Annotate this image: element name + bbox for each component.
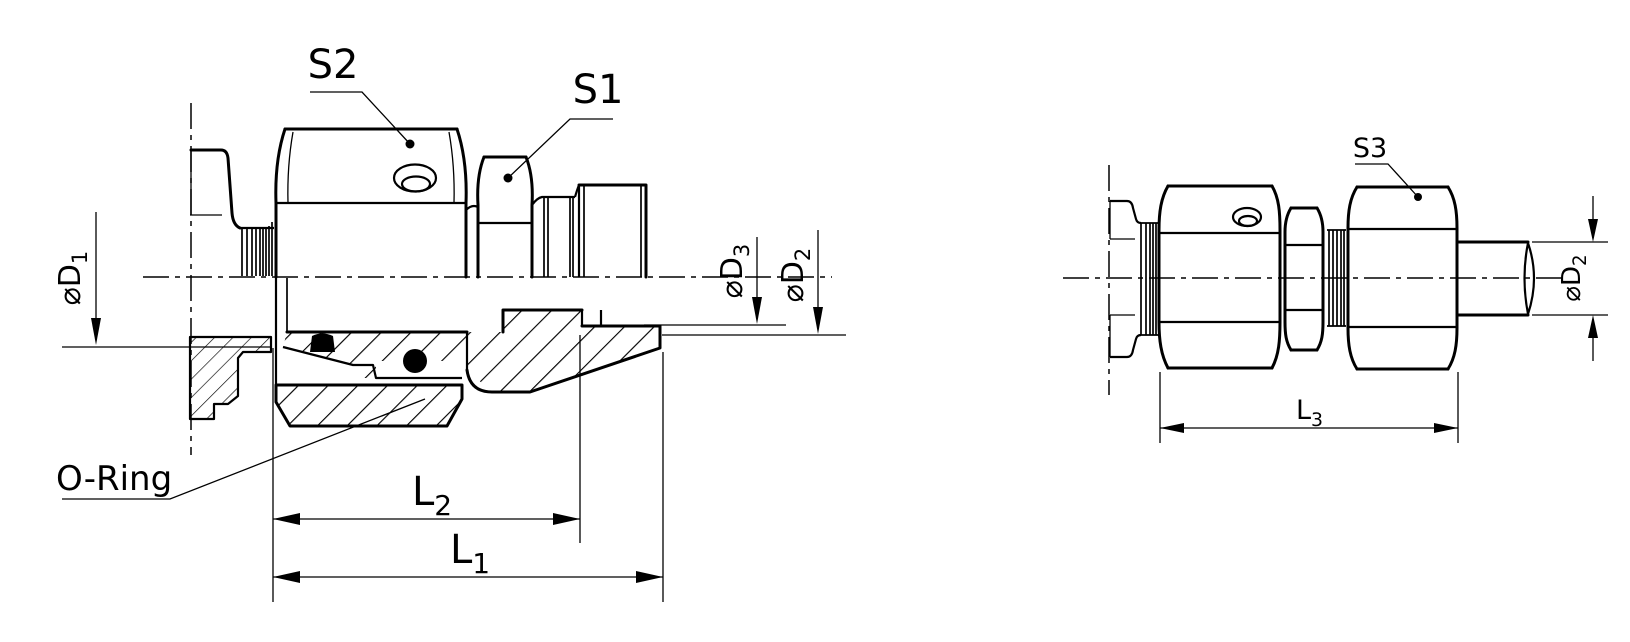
oring-label: O-Ring (56, 459, 172, 499)
s3-label: S3 (1353, 133, 1387, 164)
ferrule-seal-section (310, 334, 335, 353)
technical-drawing-page: ⌀D1 ⌀D3 ⌀D2 O-Ring S2 S1 (0, 0, 1630, 642)
o-ring-section (403, 349, 427, 373)
nut-lower-block-section (276, 385, 462, 426)
s1-label: S1 (573, 67, 624, 113)
fitting-drawing-svg: ⌀D1 ⌀D3 ⌀D2 O-Ring S2 S1 (0, 0, 1630, 642)
thread-lines-middle (1327, 230, 1346, 326)
s2-label: S2 (308, 42, 359, 88)
drawing-background (0, 0, 1630, 642)
